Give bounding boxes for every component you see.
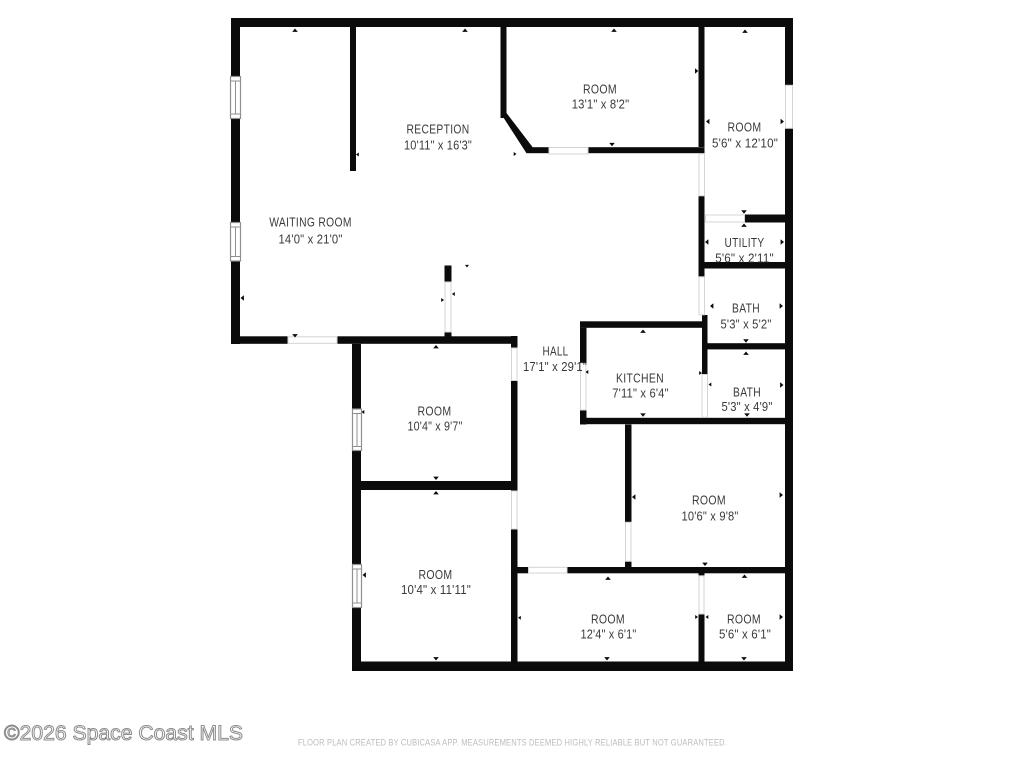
svg-text:ROOM: ROOM [591,613,625,627]
svg-text:5'6" x 2'11": 5'6" x 2'11" [715,252,774,266]
svg-text:BATH: BATH [733,386,761,400]
svg-text:10'11" x 16'3": 10'11" x 16'3" [404,139,472,153]
svg-text:ROOM: ROOM [728,121,762,135]
svg-text:5'6" x 12'10": 5'6" x 12'10" [712,137,778,151]
svg-text:FLOOR PLAN CREATED BY CUBICASA: FLOOR PLAN CREATED BY CUBICASA APP. MEAS… [298,738,727,749]
svg-text:WAITING ROOM: WAITING ROOM [269,216,352,230]
svg-text:UTILITY: UTILITY [725,236,765,250]
svg-text:ROOM: ROOM [419,568,453,582]
svg-text:10'4" x 9'7": 10'4" x 9'7" [408,420,463,434]
svg-text:ROOM: ROOM [692,494,726,508]
svg-text:RECEPTION: RECEPTION [407,123,470,137]
svg-text:ROOM: ROOM [418,405,452,419]
svg-text:10'4" x 11'11": 10'4" x 11'11" [401,583,471,597]
svg-text:14'0" x 21'0": 14'0" x 21'0" [279,233,343,247]
svg-text:BATH: BATH [732,302,760,316]
svg-text:©2026 Space Coast MLS: ©2026 Space Coast MLS [4,722,243,745]
svg-text:5'6" x 6'1": 5'6" x 6'1" [719,628,771,642]
svg-text:7'11" x 6'4": 7'11" x 6'4" [612,387,669,401]
svg-text:HALL: HALL [543,345,569,359]
svg-text:12'4" x 6'1": 12'4" x 6'1" [581,628,637,642]
svg-text:ROOM: ROOM [727,613,761,627]
svg-text:5'3" x 4'9": 5'3" x 4'9" [722,400,773,414]
svg-text:KITCHEN: KITCHEN [616,372,664,386]
svg-text:10'6" x 9'8": 10'6" x 9'8" [682,510,739,524]
svg-text:5'3" x 5'2": 5'3" x 5'2" [721,318,772,332]
svg-text:13'1" x 8'2": 13'1" x 8'2" [572,98,630,112]
svg-text:ROOM: ROOM [583,83,617,97]
svg-text:17'1" x 29'1": 17'1" x 29'1" [523,360,587,374]
